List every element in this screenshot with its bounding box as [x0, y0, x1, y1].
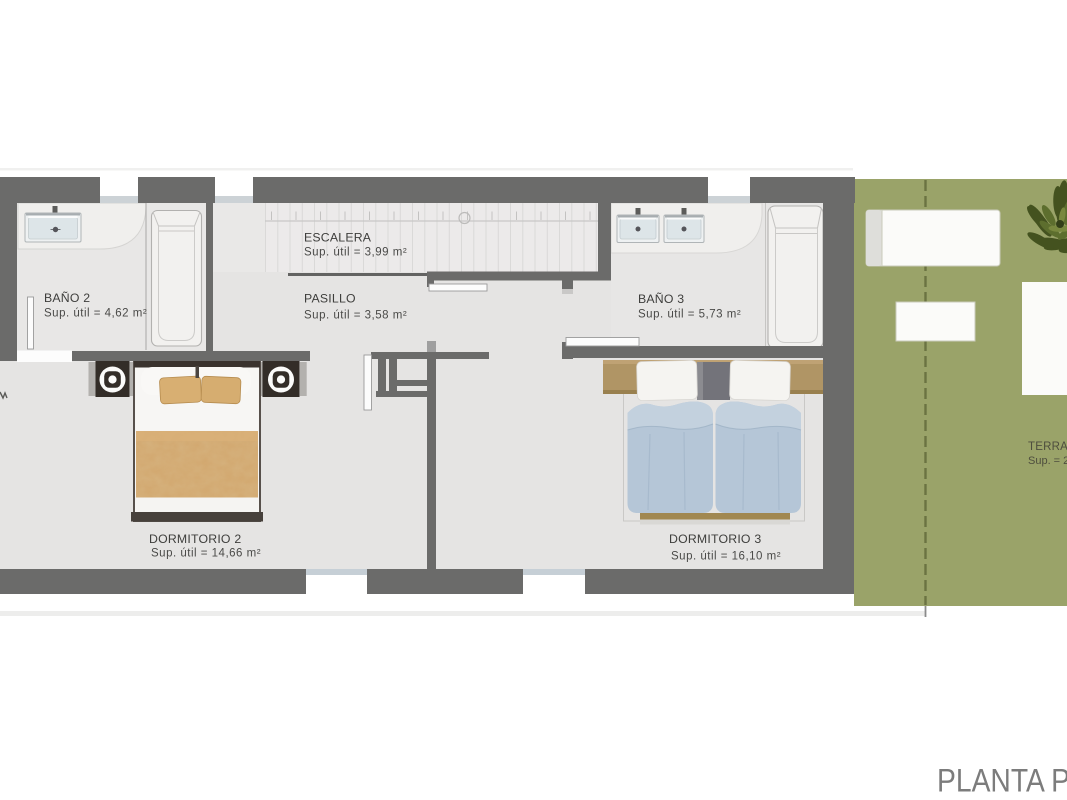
svg-text:Sup. = 25 m²: Sup. = 25 m² — [1028, 455, 1067, 467]
svg-text:Sup. útil = 4,62 m²: Sup. útil = 4,62 m² — [44, 308, 147, 320]
svg-text:PLANTA PRIMERA: PLANTA PRIMERA — [937, 763, 1067, 799]
svg-text:BAÑO 3: BAÑO 3 — [638, 292, 684, 306]
svg-text:PASILLO: PASILLO — [304, 292, 356, 306]
svg-text:BAÑO 2: BAÑO 2 — [44, 291, 90, 305]
svg-text:Sup. útil = 3,58 m²: Sup. útil = 3,58 m² — [304, 310, 407, 322]
svg-text:DORMITORIO 2: DORMITORIO 2 — [149, 532, 241, 546]
svg-text:DORMITORIO 3: DORMITORIO 3 — [669, 532, 761, 546]
svg-text:Sup. útil = 5,73 m²: Sup. útil = 5,73 m² — [638, 309, 741, 321]
svg-text:Sup. útil = 16,10 m²: Sup. útil = 16,10 m² — [671, 551, 781, 563]
svg-text:ESCALERA: ESCALERA — [304, 231, 372, 245]
svg-text:Sup. útil = 3,99 m²: Sup. útil = 3,99 m² — [304, 247, 407, 259]
svg-text:Sup. útil = 14,66 m²: Sup. útil = 14,66 m² — [151, 548, 261, 560]
svg-text:TERRAZA: TERRAZA — [1028, 441, 1067, 453]
